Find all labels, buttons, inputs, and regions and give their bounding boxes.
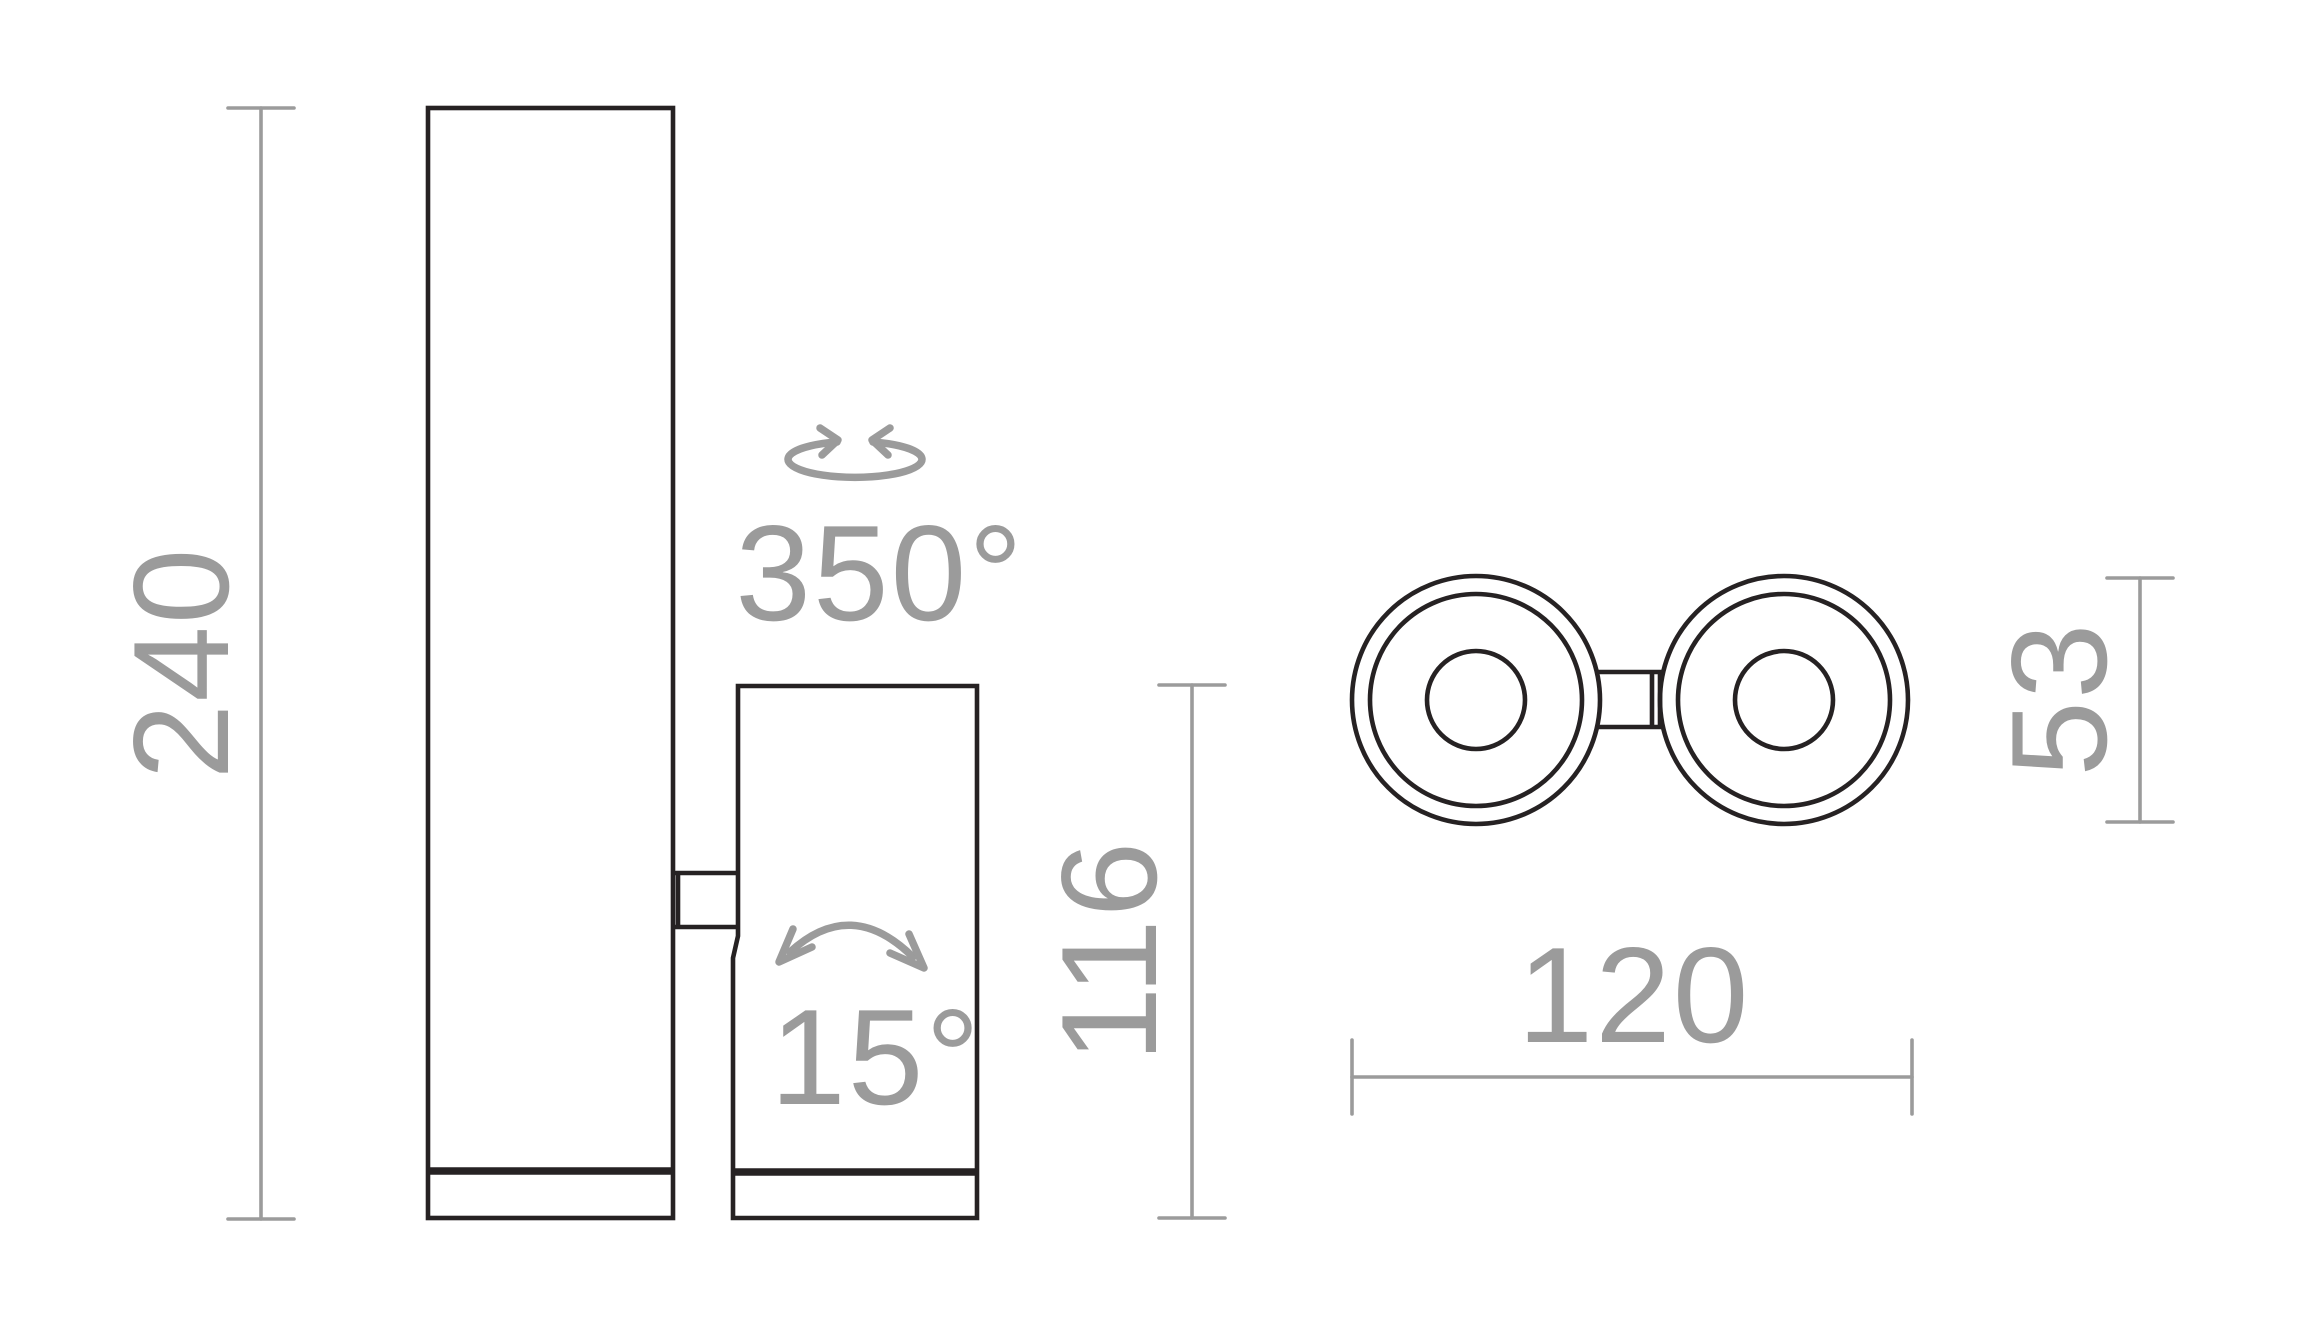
rotation-arrows-icon (788, 428, 922, 477)
luminaire-dimension-drawing: 240 116 350° 15° 53 120 (0, 0, 2300, 1336)
tilt-angle-label: 15° (770, 981, 982, 1133)
left-spot-head (1352, 576, 1600, 824)
right-spot-head (1660, 576, 1908, 824)
left-head-bezel-circle (1370, 594, 1582, 806)
right-head-bezel-circle (1678, 594, 1890, 806)
left-head-outer-circle (1352, 576, 1600, 824)
top-view (1352, 576, 1908, 824)
dim-label-116: 116 (1033, 840, 1185, 1063)
head-cylinder-outline (733, 686, 977, 1218)
head-connector (1597, 672, 1663, 727)
dimension-drawing-page: 240 116 350° 15° 53 120 (0, 0, 2300, 1336)
rotation-ellipse-arc (788, 442, 922, 477)
pivot-bracket (673, 873, 738, 927)
right-head-outer-circle (1660, 576, 1908, 824)
body-cylinder-outline (428, 108, 673, 1218)
dim-label-53: 53 (1983, 621, 2135, 776)
dim-label-120: 120 (1518, 919, 1751, 1071)
left-head-lens-circle (1427, 651, 1525, 749)
rotation-angle-label: 350° (735, 497, 1024, 649)
right-head-lens-circle (1735, 651, 1833, 749)
tilt-arc-icon (779, 925, 924, 968)
dim-label-240: 240 (105, 547, 257, 780)
